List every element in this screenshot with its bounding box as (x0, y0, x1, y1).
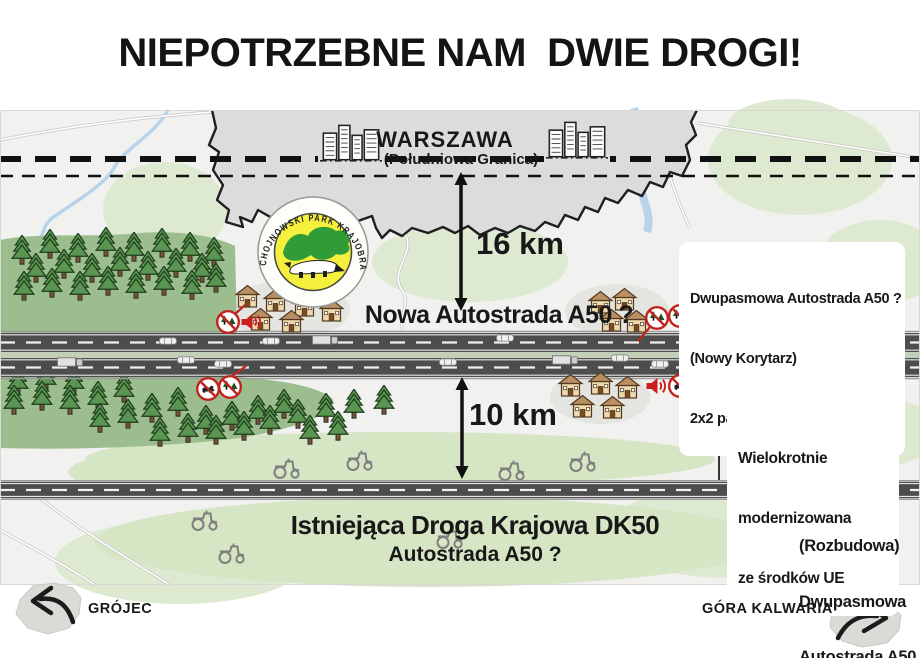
existing-road-title: Istniejąca Droga Krajowa DK50 (275, 511, 675, 541)
gora-kalwaria-label: GÓRA KALWARIA (702, 601, 833, 618)
no-trees-icon (646, 307, 668, 329)
callout-line: (Nowy Korytarz) (690, 349, 894, 369)
infographic-page: CHOJNOWSKI PARK KRAJOBRAZOWY NIEPOTRZEBN… (0, 0, 920, 658)
truck-icon (313, 336, 338, 344)
grojec-arrow (16, 583, 81, 634)
car-icon (612, 355, 629, 361)
warszawa-label: WARSZAWA (345, 127, 545, 152)
new-highway-label: Nowa Autostrada A50 ? (349, 301, 649, 330)
callout-line: Wielokrotnie (738, 449, 888, 469)
distance-upper-label: 16 km (476, 226, 564, 262)
no-trees-icon (217, 311, 239, 333)
page-title: NIEPOTRZEBNE NAM DWIE DROGI! (0, 30, 920, 76)
car-icon (263, 338, 280, 344)
car-icon (497, 335, 514, 341)
car-icon (440, 359, 457, 365)
car-icon (215, 361, 232, 367)
truck-icon (553, 356, 578, 364)
callout-line: Autostrada A50 (799, 648, 916, 658)
callout-line: Dwupasmowa Autostrada A50 ? (690, 289, 894, 309)
no-trees-icon (219, 376, 241, 398)
warszawa-sublabel: (Południowa Granica) (361, 151, 561, 168)
no-animals-icon (197, 378, 219, 400)
car-icon (652, 361, 669, 367)
truck-icon (58, 358, 83, 366)
distance-lower-label: 10 km (469, 397, 557, 433)
car-icon (178, 357, 195, 363)
existing-road-subtitle: Autostrada A50 ? (275, 543, 675, 567)
car-icon (160, 338, 177, 344)
grojec-label: GRÓJEC (88, 601, 152, 618)
callout-line: (Rozbudowa) (799, 537, 916, 556)
callout-expansion: (Rozbudowa) Dwupasmowa Autostrada A50 2x… (799, 500, 916, 658)
